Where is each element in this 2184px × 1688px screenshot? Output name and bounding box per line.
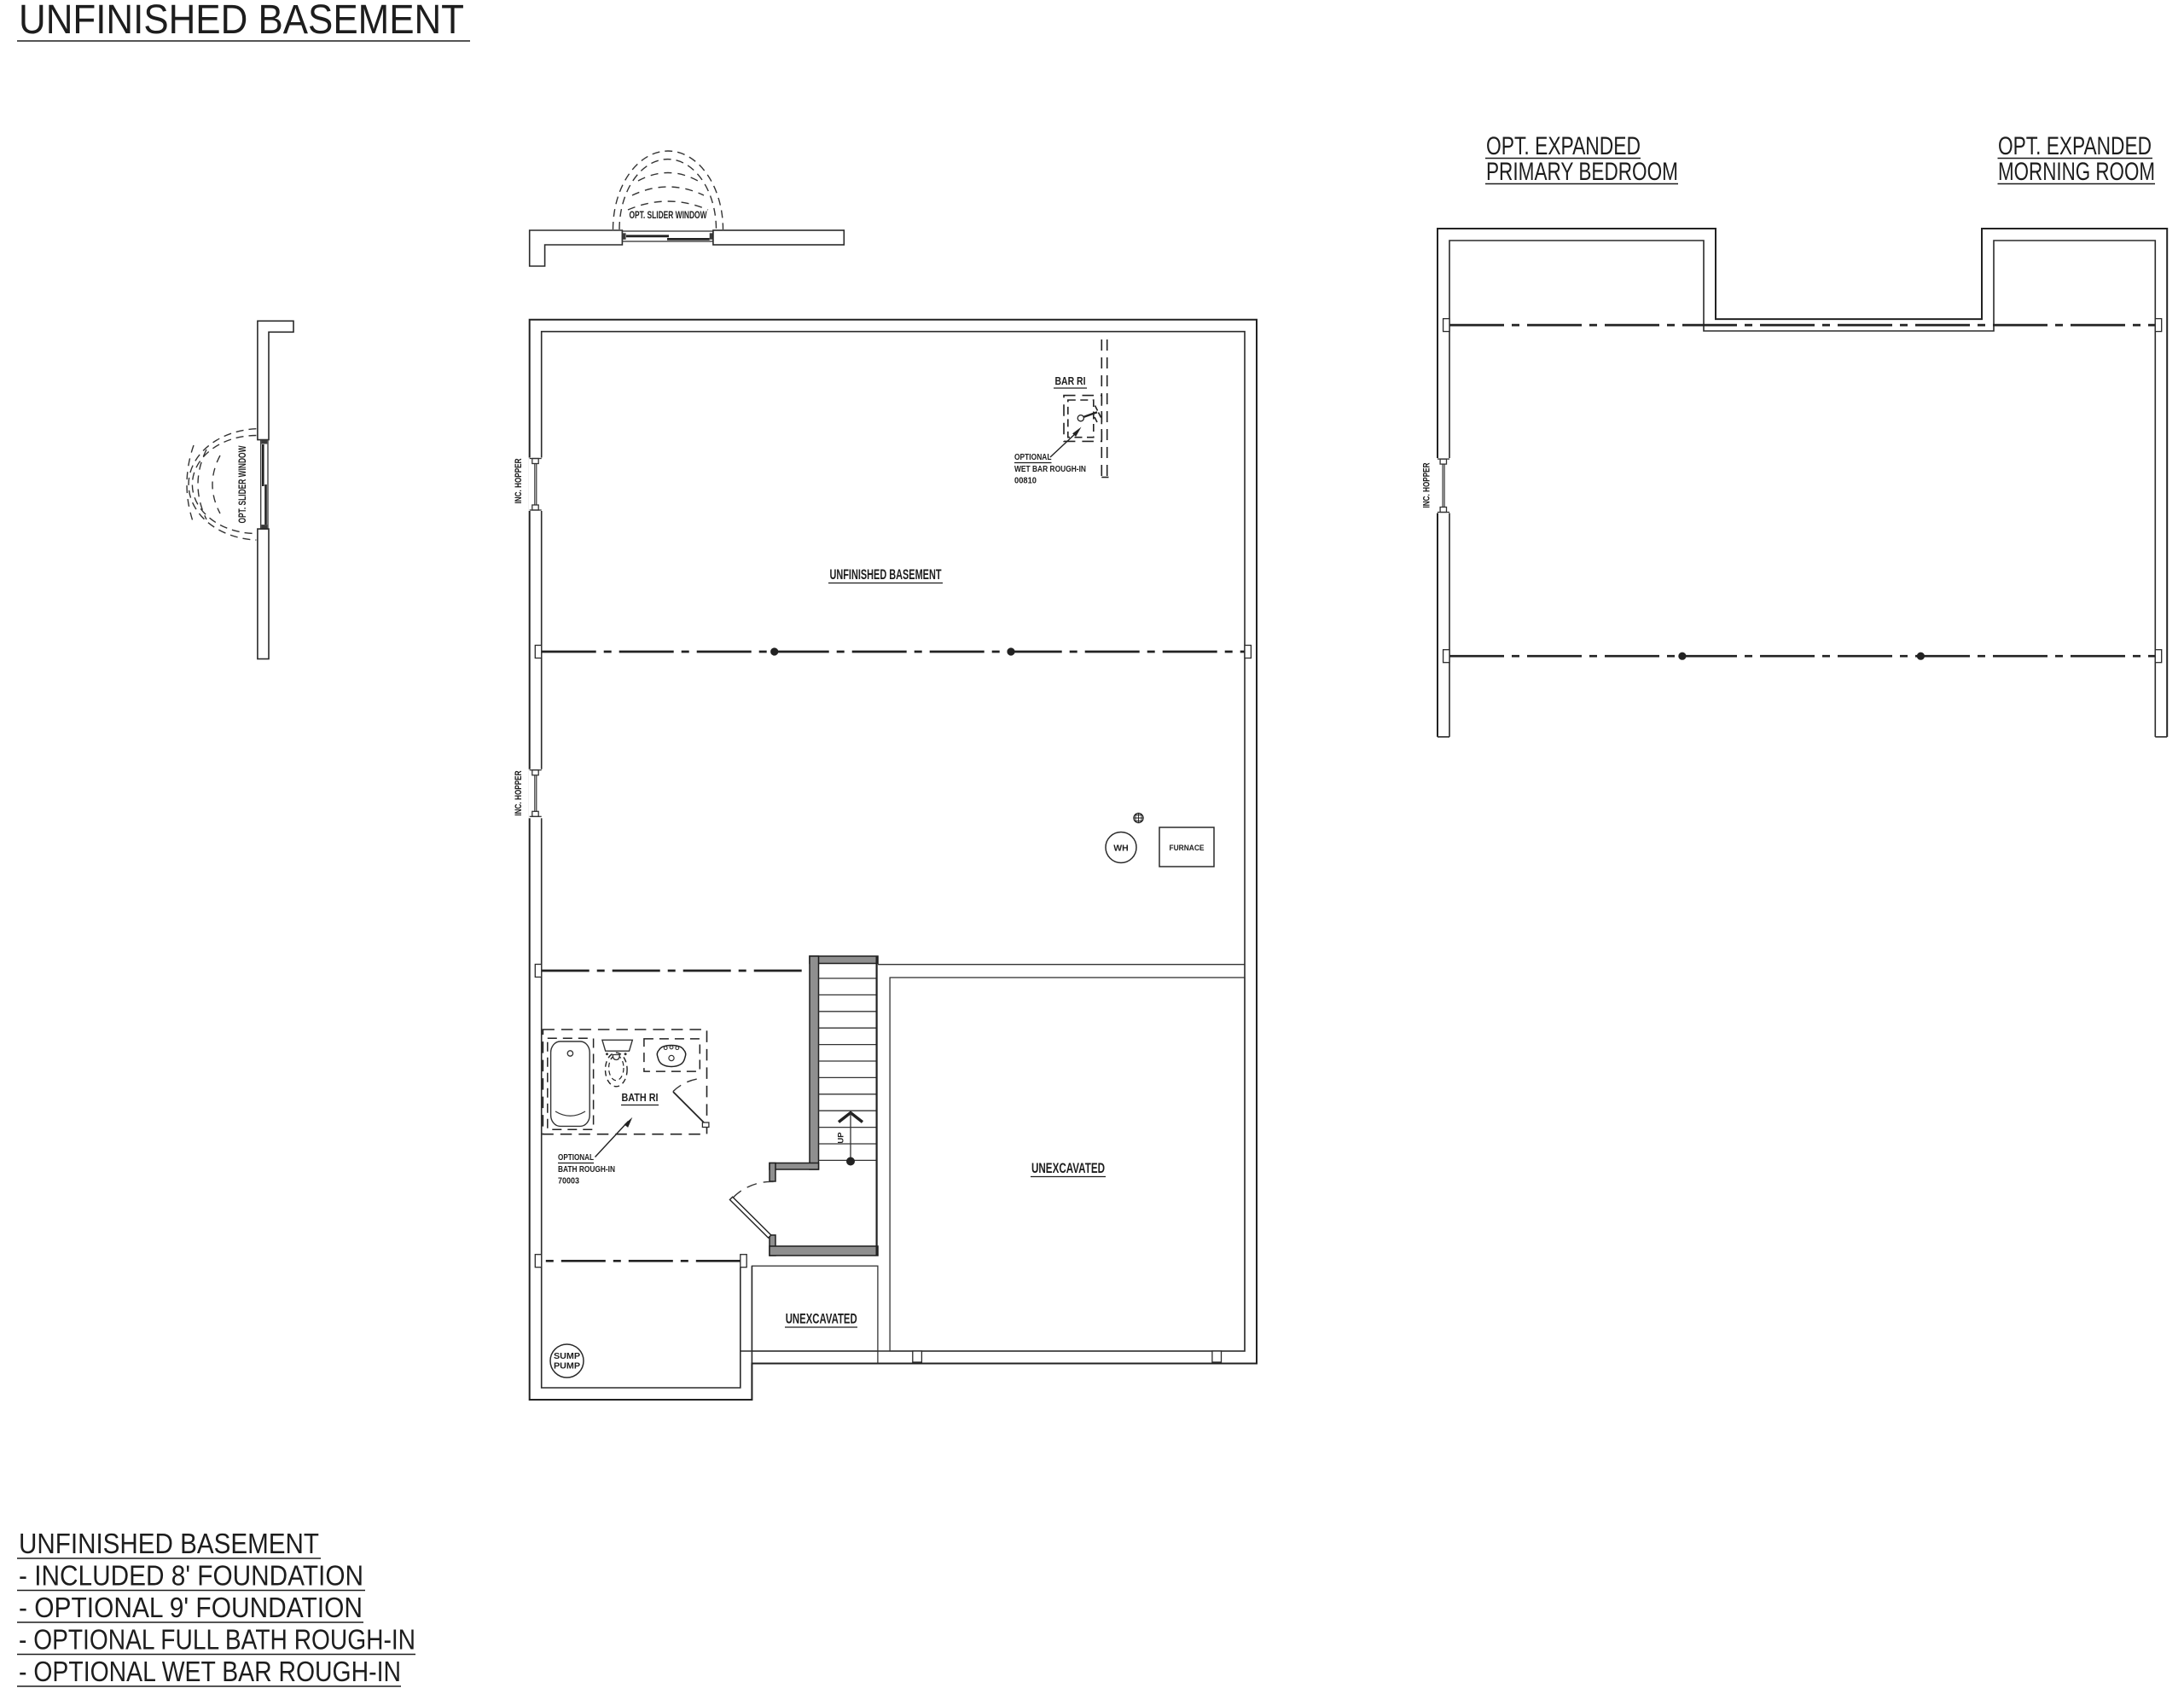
svg-text:MORNING ROOM: MORNING ROOM: [1998, 158, 2155, 186]
svg-text:OPT. EXPANDED: OPT. EXPANDED: [1998, 132, 2152, 160]
svg-text:PUMP: PUMP: [554, 1362, 580, 1372]
svg-text:SUMP: SUMP: [554, 1352, 580, 1361]
svg-text:INC. HOPPER: INC. HOPPER: [514, 770, 524, 815]
svg-text:00810: 00810: [1014, 476, 1037, 486]
svg-text:INC. HOPPER: INC. HOPPER: [514, 458, 524, 503]
svg-text:OPT. EXPANDED: OPT. EXPANDED: [1486, 132, 1641, 160]
svg-text:WET BAR ROUGH-IN: WET BAR ROUGH-IN: [1014, 464, 1086, 474]
svg-text:PRIMARY BEDROOM: PRIMARY BEDROOM: [1486, 158, 1678, 186]
svg-text:OPTIONAL: OPTIONAL: [1014, 452, 1052, 462]
svg-text:UNFINISHED BASEMENT: UNFINISHED BASEMENT: [19, 0, 464, 43]
svg-text:OPTIONAL: OPTIONAL: [558, 1152, 594, 1163]
svg-text:70003: 70003: [558, 1176, 579, 1186]
svg-text:WH: WH: [1113, 844, 1129, 854]
svg-text:BAR RI: BAR RI: [1055, 375, 1086, 387]
svg-text:- OPTIONAL 9' FOUNDATION: - OPTIONAL 9' FOUNDATION: [19, 1592, 363, 1624]
svg-text:UNFINISHED BASEMENT: UNFINISHED BASEMENT: [19, 1528, 319, 1560]
svg-text:INC. HOPPER: INC. HOPPER: [1422, 462, 1432, 508]
svg-text:OPT. SLIDER WINDOW: OPT. SLIDER WINDOW: [236, 445, 248, 523]
svg-text:BATH RI: BATH RI: [622, 1092, 659, 1104]
svg-text:UNEXCAVATED: UNEXCAVATED: [786, 1311, 857, 1327]
svg-text:- OPTIONAL FULL BATH ROUGH-IN: - OPTIONAL FULL BATH ROUGH-IN: [19, 1625, 415, 1656]
svg-text:UP: UP: [837, 1132, 846, 1144]
svg-text:- OPTIONAL WET BAR ROUGH-IN: - OPTIONAL WET BAR ROUGH-IN: [19, 1656, 401, 1688]
svg-text:- INCLUDED 8' FOUNDATION: - INCLUDED 8' FOUNDATION: [19, 1561, 363, 1592]
svg-text:FURNACE: FURNACE: [1170, 844, 1205, 853]
svg-text:UNEXCAVATED: UNEXCAVATED: [1031, 1160, 1105, 1176]
svg-text:OPT. SLIDER WINDOW: OPT. SLIDER WINDOW: [630, 209, 707, 221]
svg-text:BATH ROUGH-IN: BATH ROUGH-IN: [558, 1164, 615, 1175]
svg-text:UNFINISHED BASEMENT: UNFINISHED BASEMENT: [830, 566, 942, 583]
